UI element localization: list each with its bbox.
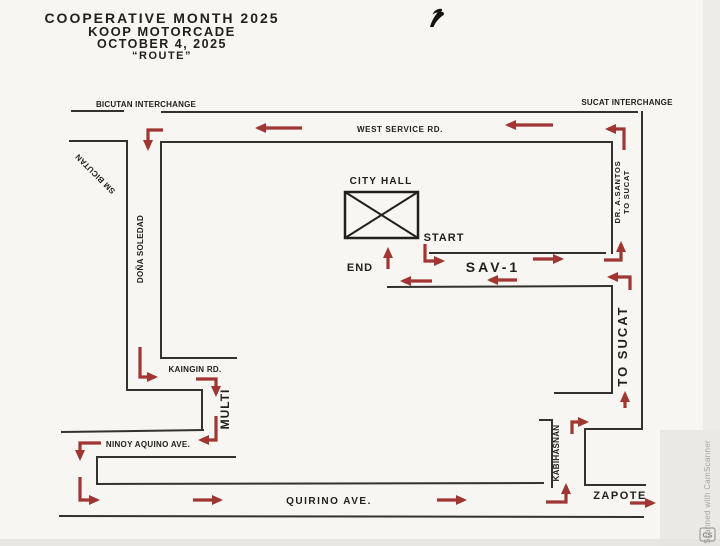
route-map-canvas: COOPERATIVE MONTH 2025 KOOP MOTORCADE OC… [0, 0, 720, 546]
arrow-kabihasnan-top-icon [572, 422, 586, 434]
scan-bottom-shade [0, 539, 720, 546]
label-dr-a-santos-group: DR. A.SANTOS TO SUCAT [613, 161, 631, 224]
label-quirino-ave: QUIRINO AVE. [286, 496, 372, 507]
scanned-route-map: COOPERATIVE MONTH 2025 KOOP MOTORCADE OC… [0, 0, 720, 546]
title-line-3: OCTOBER 4, 2025 [97, 37, 227, 51]
label-west-service-rd: WEST SERVICE RD. [357, 125, 443, 134]
arrow-turn-quirino-icon [80, 477, 97, 500]
arrow-turn-ninoy-icon [201, 416, 216, 440]
label-start: START [424, 232, 465, 244]
label-sav1: SAV-1 [466, 259, 520, 275]
road-edge-quirino-south [60, 516, 643, 517]
label-sucat-interchange: SUCAT INTERCHANGE [581, 98, 673, 107]
watermark-badge-label: CS [703, 533, 713, 540]
arrow-turn-multi-icon [196, 379, 216, 394]
city-hall-block [345, 192, 418, 238]
label-dr-a-santos-line1: DR. A.SANTOS [613, 161, 622, 224]
label-kaingin-rd: KAINGIN RD. [168, 365, 221, 374]
road-edge-ninoy-north [62, 430, 203, 432]
label-city-hall: CITY HALL [350, 176, 413, 187]
road-edge-sav1-south [388, 286, 612, 287]
label-multi: MULTI [218, 389, 232, 430]
label-ninoy-aquino-ave: NINOY AQUINO AVE. [106, 440, 190, 449]
arrow-ninoy-down-icon [80, 443, 101, 458]
label-to-sucat: TO SUCAT [615, 305, 630, 386]
label-zapote: ZAPOTE [593, 490, 647, 502]
label-sm-bicutan: SM BICUTAN [73, 152, 117, 196]
arrow-turn-kaingin-icon [140, 347, 155, 377]
arrow-turn-kabihasnan-icon [546, 486, 566, 502]
label-dona-soledad: DOÑA SOLEDAD [136, 215, 145, 283]
label-dr-a-santos-line2: TO SUCAT [622, 170, 631, 214]
map-labels: BICUTAN INTERCHANGE SUCAT INTERCHANGE WE… [73, 98, 673, 507]
road-edge-quirino-north [97, 483, 543, 484]
arrow-turn-westservice-icon [608, 129, 624, 150]
ink-mark [430, 9, 444, 27]
title-block: COOPERATIVE MONTH 2025 KOOP MOTORCADE OC… [44, 10, 279, 62]
label-kabihasnan: KABIHASNAN [552, 425, 561, 482]
label-end: END [347, 262, 373, 274]
title-line-4: “ROUTE” [132, 50, 192, 62]
label-bicutan-interchange: BICUTAN INTERCHANGE [96, 100, 197, 109]
